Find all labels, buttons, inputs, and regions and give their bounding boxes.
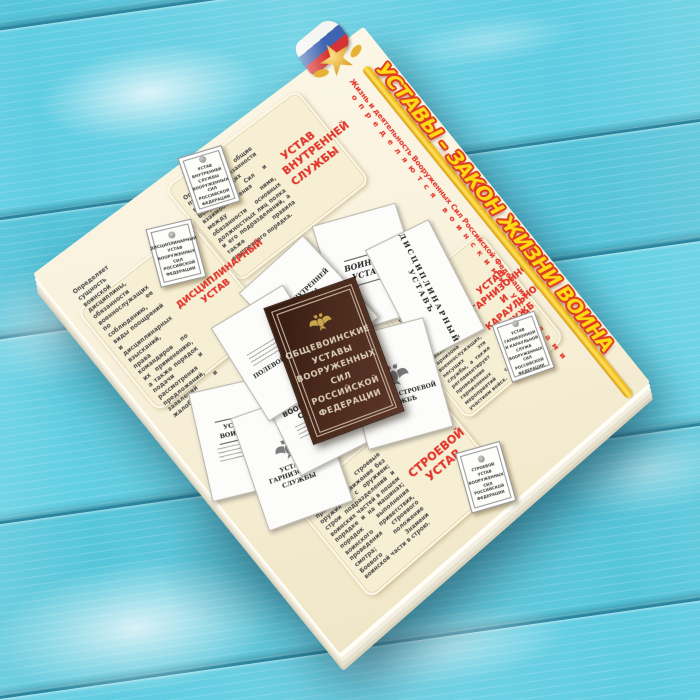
cover-text: ДИСЦИПЛИНАРНЫЙ УСТАВ ВООРУЖЕННЫХ СИЛ РОС…: [149, 235, 205, 280]
emblem-icon: [477, 455, 485, 464]
emblem-icon: [198, 155, 207, 164]
gold-eagle-icon: [304, 306, 336, 335]
emblem-icon: [511, 320, 520, 329]
photo-scene: УСТАВЫ – ЗАКОН ЖИЗНИ ВОИНА Жизнь и деяте…: [0, 0, 700, 700]
book-title: ОБЩЕВОИНСКИЕ УСТАВЫ ВООРУЖЕННЫХ СИЛ РОСС…: [284, 322, 394, 425]
emblem-icon: [167, 231, 176, 239]
cover-text: СТРОЕВОЙ УСТАВ ВООРУЖЕННЫХ СИЛ РОССИЙСКО…: [461, 458, 513, 504]
